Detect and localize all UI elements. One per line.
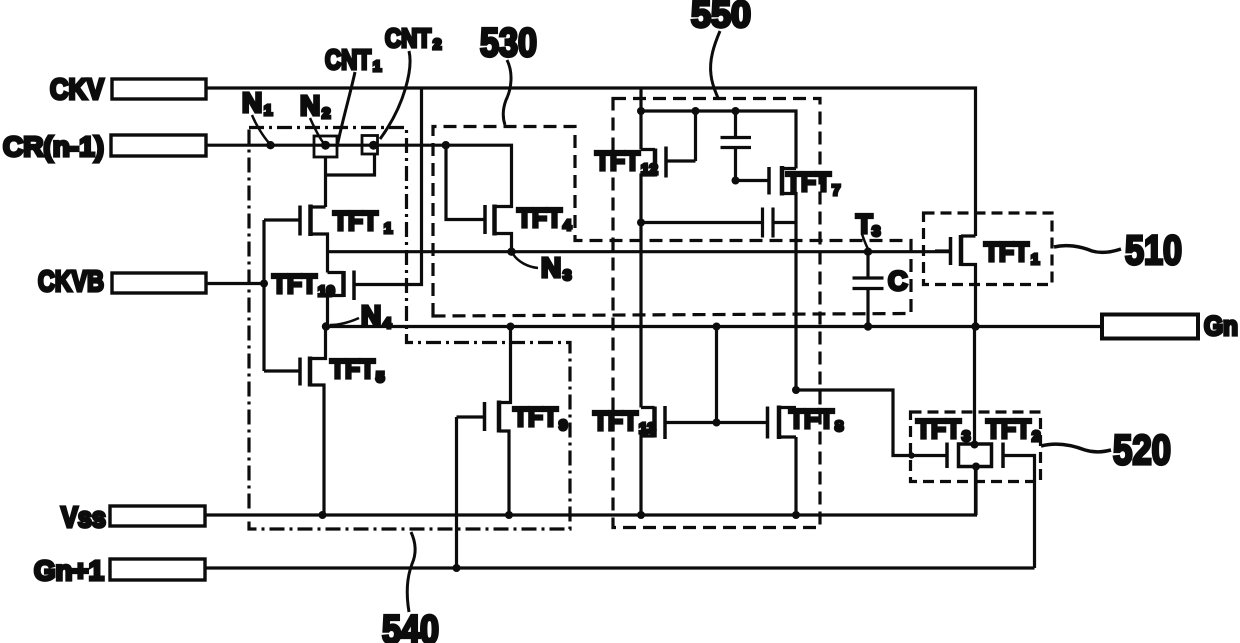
svg-text:520: 520: [1113, 426, 1171, 473]
svg-text:1: 1: [384, 220, 392, 237]
svg-text:TFT: TFT: [593, 406, 638, 436]
svg-text:TFT: TFT: [330, 354, 375, 384]
svg-text:540: 540: [382, 608, 439, 643]
svg-text:12: 12: [641, 161, 658, 178]
svg-text:T: T: [856, 209, 873, 239]
svg-text:2: 2: [322, 105, 330, 122]
svg-text:N: N: [541, 252, 561, 283]
svg-text:1: 1: [373, 58, 381, 75]
svg-text:TFT: TFT: [595, 146, 640, 176]
svg-text:8: 8: [835, 418, 843, 435]
svg-text:N: N: [300, 90, 320, 121]
svg-text:5: 5: [376, 369, 384, 386]
svg-text:TFT: TFT: [986, 414, 1031, 444]
svg-text:550: 550: [691, 0, 751, 35]
svg-text:2: 2: [433, 36, 441, 53]
svg-text:3: 3: [563, 267, 571, 284]
svg-text:TFT: TFT: [789, 404, 834, 434]
svg-text:CR(n-1): CR(n-1): [3, 131, 104, 162]
svg-text:CKVB: CKVB: [38, 266, 104, 298]
svg-text:TFT: TFT: [517, 203, 562, 233]
svg-text:TFT: TFT: [916, 414, 961, 444]
svg-text:N: N: [361, 300, 381, 331]
svg-text:3: 3: [962, 428, 970, 445]
svg-text:7: 7: [832, 182, 840, 199]
svg-text:530: 530: [480, 21, 537, 65]
svg-text:TFT: TFT: [333, 206, 378, 236]
svg-text:2: 2: [1032, 428, 1040, 445]
svg-text:13: 13: [639, 420, 656, 437]
svg-text:CNT: CNT: [325, 44, 371, 75]
svg-text:TFT: TFT: [984, 237, 1029, 267]
svg-text:9: 9: [559, 417, 567, 434]
svg-text:4: 4: [383, 315, 392, 332]
svg-text:N: N: [242, 87, 262, 118]
svg-text:Gn+1: Gn+1: [34, 555, 104, 586]
svg-text:1: 1: [264, 102, 272, 119]
svg-text:Vss: Vss: [61, 502, 106, 534]
svg-text:C: C: [888, 266, 908, 296]
svg-text:1: 1: [1031, 251, 1039, 268]
svg-text:CKV: CKV: [50, 74, 105, 106]
svg-text:CNT: CNT: [385, 23, 431, 53]
svg-text:10: 10: [318, 283, 335, 300]
svg-text:3: 3: [872, 223, 880, 240]
svg-text:TFT: TFT: [513, 402, 558, 432]
svg-text:Gn: Gn: [1204, 311, 1238, 341]
svg-text:TFT: TFT: [272, 269, 317, 299]
svg-text:510: 510: [1125, 227, 1182, 273]
svg-text:4: 4: [563, 217, 572, 234]
svg-text:TFT: TFT: [786, 167, 831, 197]
